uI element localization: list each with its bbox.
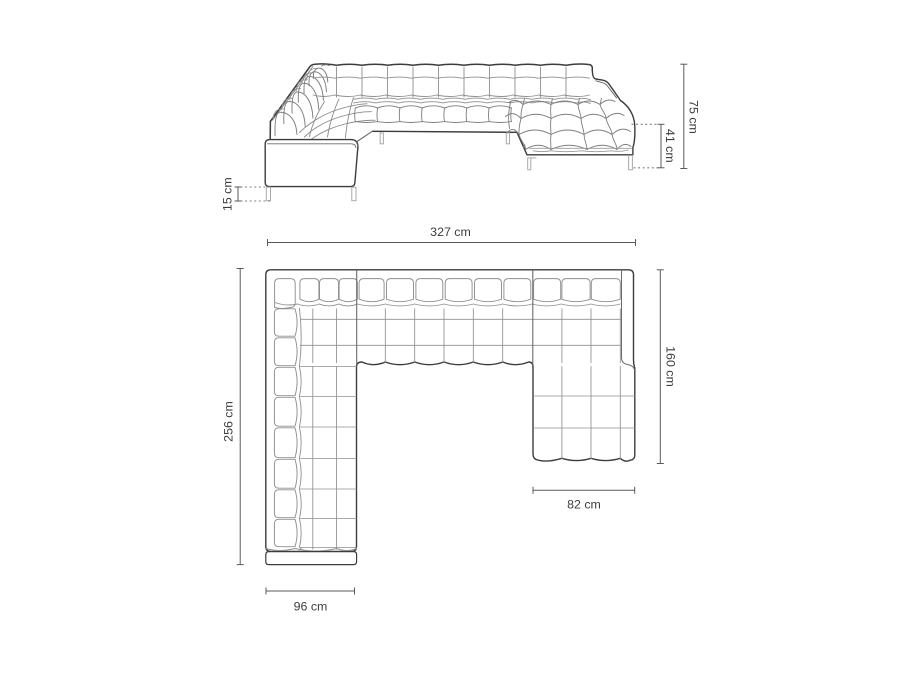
svg-text:327 cm: 327 cm: [430, 225, 471, 239]
svg-text:96 cm: 96 cm: [294, 599, 328, 613]
svg-text:15 cm: 15 cm: [220, 177, 234, 211]
svg-text:256 cm: 256 cm: [222, 401, 236, 442]
svg-text:82 cm: 82 cm: [567, 497, 601, 511]
svg-text:41 cm: 41 cm: [663, 129, 677, 163]
svg-text:75 cm: 75 cm: [687, 100, 701, 134]
svg-text:160 cm: 160 cm: [663, 346, 677, 387]
